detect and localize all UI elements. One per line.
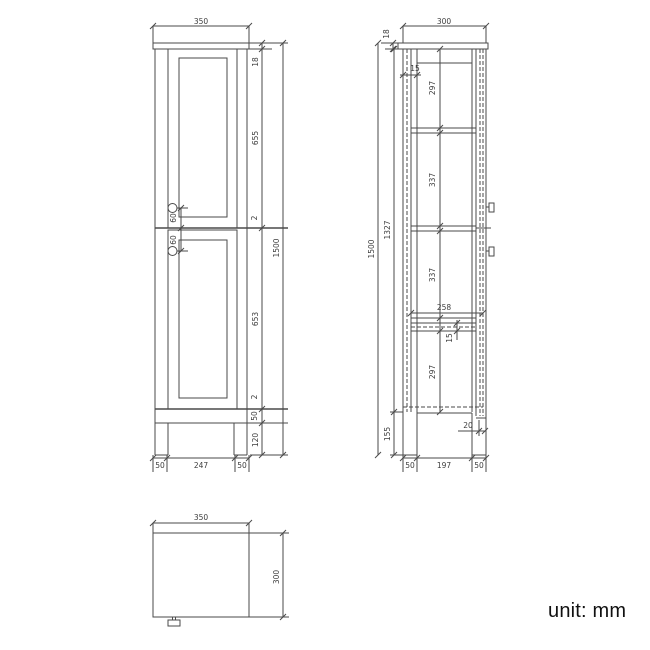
dim-plan-width: 350 <box>194 513 209 522</box>
unit-label: unit: mm <box>548 600 648 628</box>
dim-front-base-left: 50 <box>155 461 165 470</box>
side-knob-cap-lower <box>489 247 494 256</box>
front-top-panel <box>153 43 249 49</box>
dim-side-internal-depth: 258 <box>437 303 452 312</box>
front-upper-door-panel <box>179 58 227 217</box>
dim-front-bottom-rail: 50 <box>250 411 259 421</box>
front-lower-door-panel <box>179 240 227 398</box>
dim-front-total-height: 1500 <box>272 238 281 257</box>
dim-front-leg-height: 120 <box>251 433 260 448</box>
dim-front-knob-upper: 60 <box>169 213 178 223</box>
dim-side-door-overhang: 20 <box>463 421 473 430</box>
technical-drawing-page: 3501865521500653250120606050247503001815… <box>0 0 650 650</box>
front-knob-lower <box>168 247 177 256</box>
dim-side-base-center: 197 <box>437 461 452 470</box>
plan-body <box>153 533 249 617</box>
dim-front-lower-door: 653 <box>251 312 260 327</box>
dim-side-compartment-3: 337 <box>428 268 437 283</box>
dim-front-knob-lower: 60 <box>169 235 178 245</box>
dim-side-shelf-gap: 15 <box>445 333 454 343</box>
dim-front-gap-lower: 2 <box>250 394 259 399</box>
technical-drawing: 3501865521500653250120606050247503001815… <box>0 0 650 650</box>
dim-front-base-center: 247 <box>194 461 209 470</box>
dim-front-gap-upper: 2 <box>250 215 259 220</box>
dim-side-base-left: 50 <box>405 461 415 470</box>
dim-front-upper-door: 655 <box>251 131 260 146</box>
dim-side-compartment-4: 297 <box>428 365 437 380</box>
dim-side-top-thickness: 18 <box>382 29 391 39</box>
dim-side-base-right: 50 <box>474 461 484 470</box>
dim-side-floor-to-carcass: 155 <box>383 427 392 442</box>
dim-side-compartment-1: 297 <box>428 81 437 96</box>
dim-plan-depth: 300 <box>272 570 281 585</box>
dim-side-top-inset: 15 <box>410 64 420 73</box>
dim-side-depth: 300 <box>437 17 452 26</box>
dim-front-base-right: 50 <box>237 461 247 470</box>
plan-knob-cap <box>168 620 180 626</box>
dim-side-compartment-2: 337 <box>428 173 437 188</box>
dim-front-width: 350 <box>194 17 209 26</box>
front-knob-upper <box>168 204 177 213</box>
side-knob-cap-upper <box>489 203 494 212</box>
dim-side-total-height: 1500 <box>367 239 376 258</box>
dim-front-top-thickness: 18 <box>251 57 260 67</box>
dim-side-carcass-height: 1327 <box>383 220 392 239</box>
